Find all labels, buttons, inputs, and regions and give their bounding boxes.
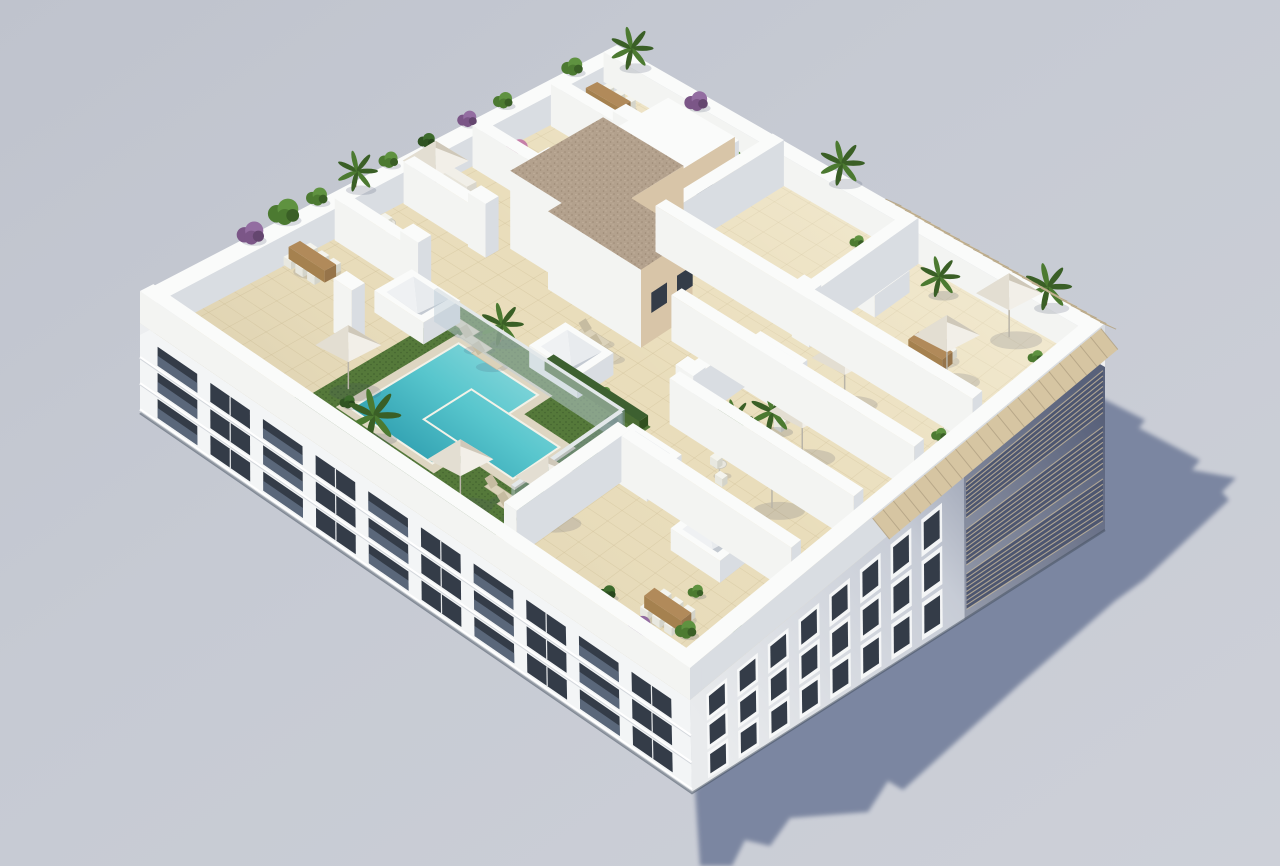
building-3d-render bbox=[0, 0, 1280, 866]
render-viewport bbox=[0, 0, 1280, 866]
